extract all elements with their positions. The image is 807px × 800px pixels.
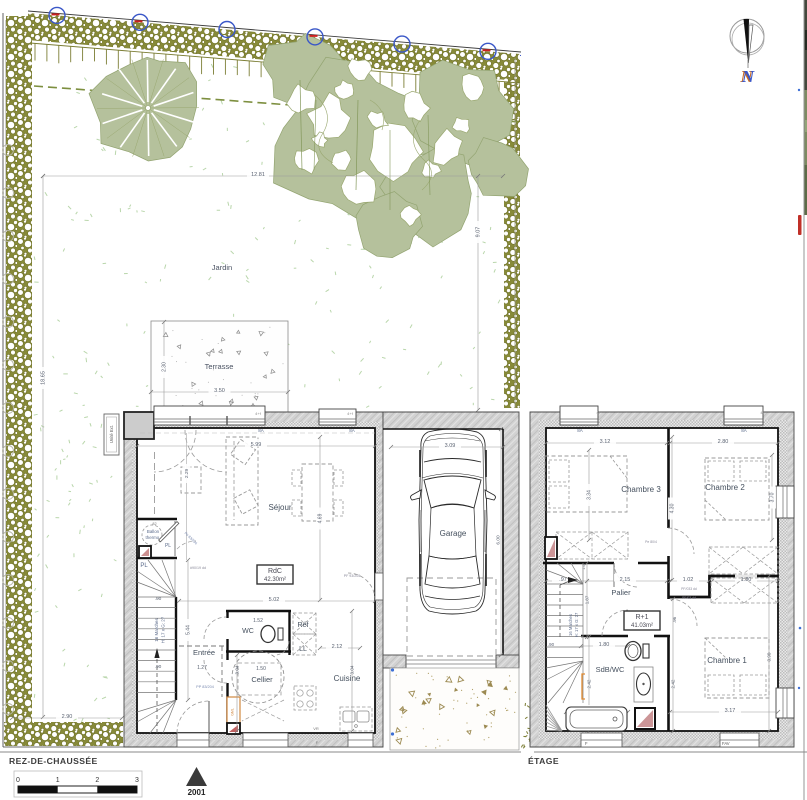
svg-text:.97: .97 [559, 577, 567, 583]
svg-text:1.52: 1.52 [253, 618, 263, 624]
svg-text:41.03m²: 41.03m² [631, 623, 653, 629]
svg-text:8A: 8A [741, 428, 747, 433]
svg-text:3.04: 3.04 [350, 665, 355, 674]
svg-text:1.87: 1.87 [585, 595, 590, 604]
svg-text:Cuisine: Cuisine [334, 674, 361, 683]
svg-text:3.09: 3.09 [445, 443, 456, 449]
svg-text:.90: .90 [155, 664, 162, 670]
svg-text:R+1: R+1 [635, 614, 648, 621]
svg-text:2.42: 2.42 [587, 679, 592, 688]
svg-text:16 Marches: 16 Marches [154, 617, 159, 641]
svg-text:2.29: 2.29 [184, 469, 190, 479]
svg-text:FAV: FAV [722, 741, 730, 746]
svg-text:5.99: 5.99 [251, 442, 262, 448]
svg-text:PF/03 dd: PF/03 dd [682, 596, 696, 600]
svg-text:4+f: 4+f [347, 411, 354, 416]
svg-text:F: F [585, 741, 588, 746]
svg-text:.90: .90 [548, 642, 555, 647]
svg-text:Pe 80/4: Pe 80/4 [645, 540, 657, 544]
svg-text:2.42: 2.42 [671, 679, 676, 688]
svg-text:18.65: 18.65 [41, 371, 47, 385]
svg-text:WC: WC [242, 628, 254, 635]
svg-text:4.30: 4.30 [670, 503, 676, 513]
svg-text:2.12: 2.12 [332, 644, 343, 650]
svg-text:Cellier: Cellier [251, 675, 273, 684]
svg-text:4.69: 4.69 [318, 513, 324, 523]
svg-text:42.30m²: 42.30m² [264, 577, 286, 583]
svg-text:VR: VR [313, 726, 319, 731]
svg-text:H: 17 x G: 27: H: 17 x G: 27 [574, 612, 579, 637]
svg-text:Terrasse: Terrasse [205, 362, 234, 371]
svg-text:.82: .82 [151, 522, 156, 526]
svg-text:3: 3 [135, 777, 139, 784]
svg-text:3.04: 3.04 [235, 665, 240, 674]
svg-text:2.30: 2.30 [162, 362, 168, 372]
svg-text:8A: 8A [258, 428, 264, 433]
svg-text:GML: GML [231, 708, 235, 716]
svg-text:5.44: 5.44 [186, 625, 192, 635]
svg-text:.90: .90 [155, 596, 162, 602]
svg-text:Entrée: Entrée [193, 648, 215, 657]
svg-text:PF/033 dd: PF/033 dd [681, 587, 697, 591]
svg-text:Chambre 1: Chambre 1 [707, 656, 747, 665]
svg-text:8A: 8A [349, 428, 355, 433]
svg-text:Unité Ext.: Unité Ext. [109, 425, 114, 443]
svg-text:ÉTAGE: ÉTAGE [528, 756, 559, 766]
svg-text:H: 17 x G: 27: H: 17 x G: 27 [161, 616, 166, 643]
svg-text:6.00: 6.00 [496, 535, 502, 545]
svg-text:3.17: 3.17 [725, 708, 736, 714]
svg-text:1.80: 1.80 [599, 642, 610, 648]
svg-text:1: 1 [56, 777, 60, 784]
svg-text:REZ-DE-CHAUSSÉE: REZ-DE-CHAUSSÉE [9, 756, 98, 766]
svg-text:2.90: 2.90 [62, 714, 73, 720]
svg-text:Chambre 2: Chambre 2 [705, 483, 745, 492]
svg-text:3.12: 3.12 [600, 439, 611, 445]
svg-text:3.70: 3.70 [770, 492, 776, 502]
svg-text:Jardin: Jardin [212, 263, 232, 272]
svg-text:2.80: 2.80 [718, 439, 729, 445]
svg-text:#90/19 dd: #90/19 dd [190, 566, 206, 570]
svg-text:3.34: 3.34 [587, 490, 593, 500]
svg-text:9.07: 9.07 [476, 227, 482, 238]
svg-text:PL: PL [165, 543, 171, 549]
svg-text:Palier: Palier [611, 588, 631, 597]
svg-text:12.81: 12.81 [251, 172, 265, 178]
svg-text:thermo.: thermo. [146, 535, 161, 540]
svg-text:0: 0 [16, 777, 20, 784]
svg-text:LL: LL [299, 646, 307, 653]
svg-text:8A: 8A [577, 428, 583, 433]
svg-text:16 Marches: 16 Marches [568, 614, 573, 636]
svg-text:Séjour: Séjour [268, 503, 291, 512]
svg-text:PP 83/204: PP 83/204 [196, 685, 214, 689]
svg-text:Garage: Garage [440, 529, 467, 538]
svg-text:Ballon: Ballon [147, 529, 160, 534]
svg-text:3.50: 3.50 [214, 388, 225, 394]
svg-text:1.02: 1.02 [683, 577, 694, 583]
svg-text:5.02: 5.02 [269, 597, 280, 603]
svg-text:Réf: Réf [298, 622, 309, 629]
svg-text:PF 93/205: PF 93/205 [344, 574, 361, 578]
svg-text:2001: 2001 [188, 788, 206, 797]
svg-text:2.15: 2.15 [620, 577, 631, 583]
svg-text:4+f: 4+f [255, 411, 262, 416]
svg-text:SdB/WC: SdB/WC [596, 665, 625, 674]
svg-text:N: N [741, 67, 755, 86]
svg-text:1.50: 1.50 [256, 666, 266, 672]
svg-text:2: 2 [95, 777, 99, 784]
svg-text:RdC: RdC [268, 568, 282, 575]
svg-text:PL: PL [140, 563, 148, 569]
